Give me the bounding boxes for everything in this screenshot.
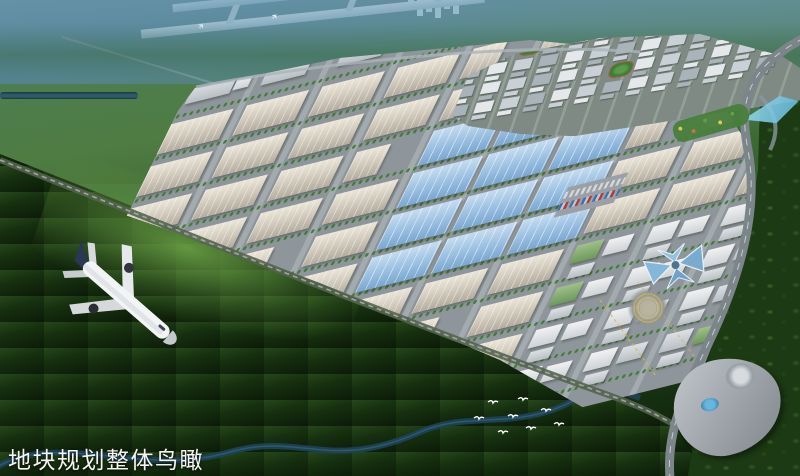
aerial-masterplan-rendering: ✈✈✈✈✈	[0, 0, 800, 476]
page-title: 地块规划整体鸟瞰	[8, 441, 204, 475]
bird-icon	[526, 427, 536, 429]
bird-icon	[554, 423, 564, 425]
airplane-icon	[28, 222, 238, 402]
bird-icon	[541, 409, 551, 411]
bird-icon	[488, 401, 498, 403]
bird-icon	[498, 431, 508, 433]
bird-icon	[474, 417, 484, 419]
bird-icon	[518, 398, 528, 400]
bird-icon	[508, 415, 518, 417]
